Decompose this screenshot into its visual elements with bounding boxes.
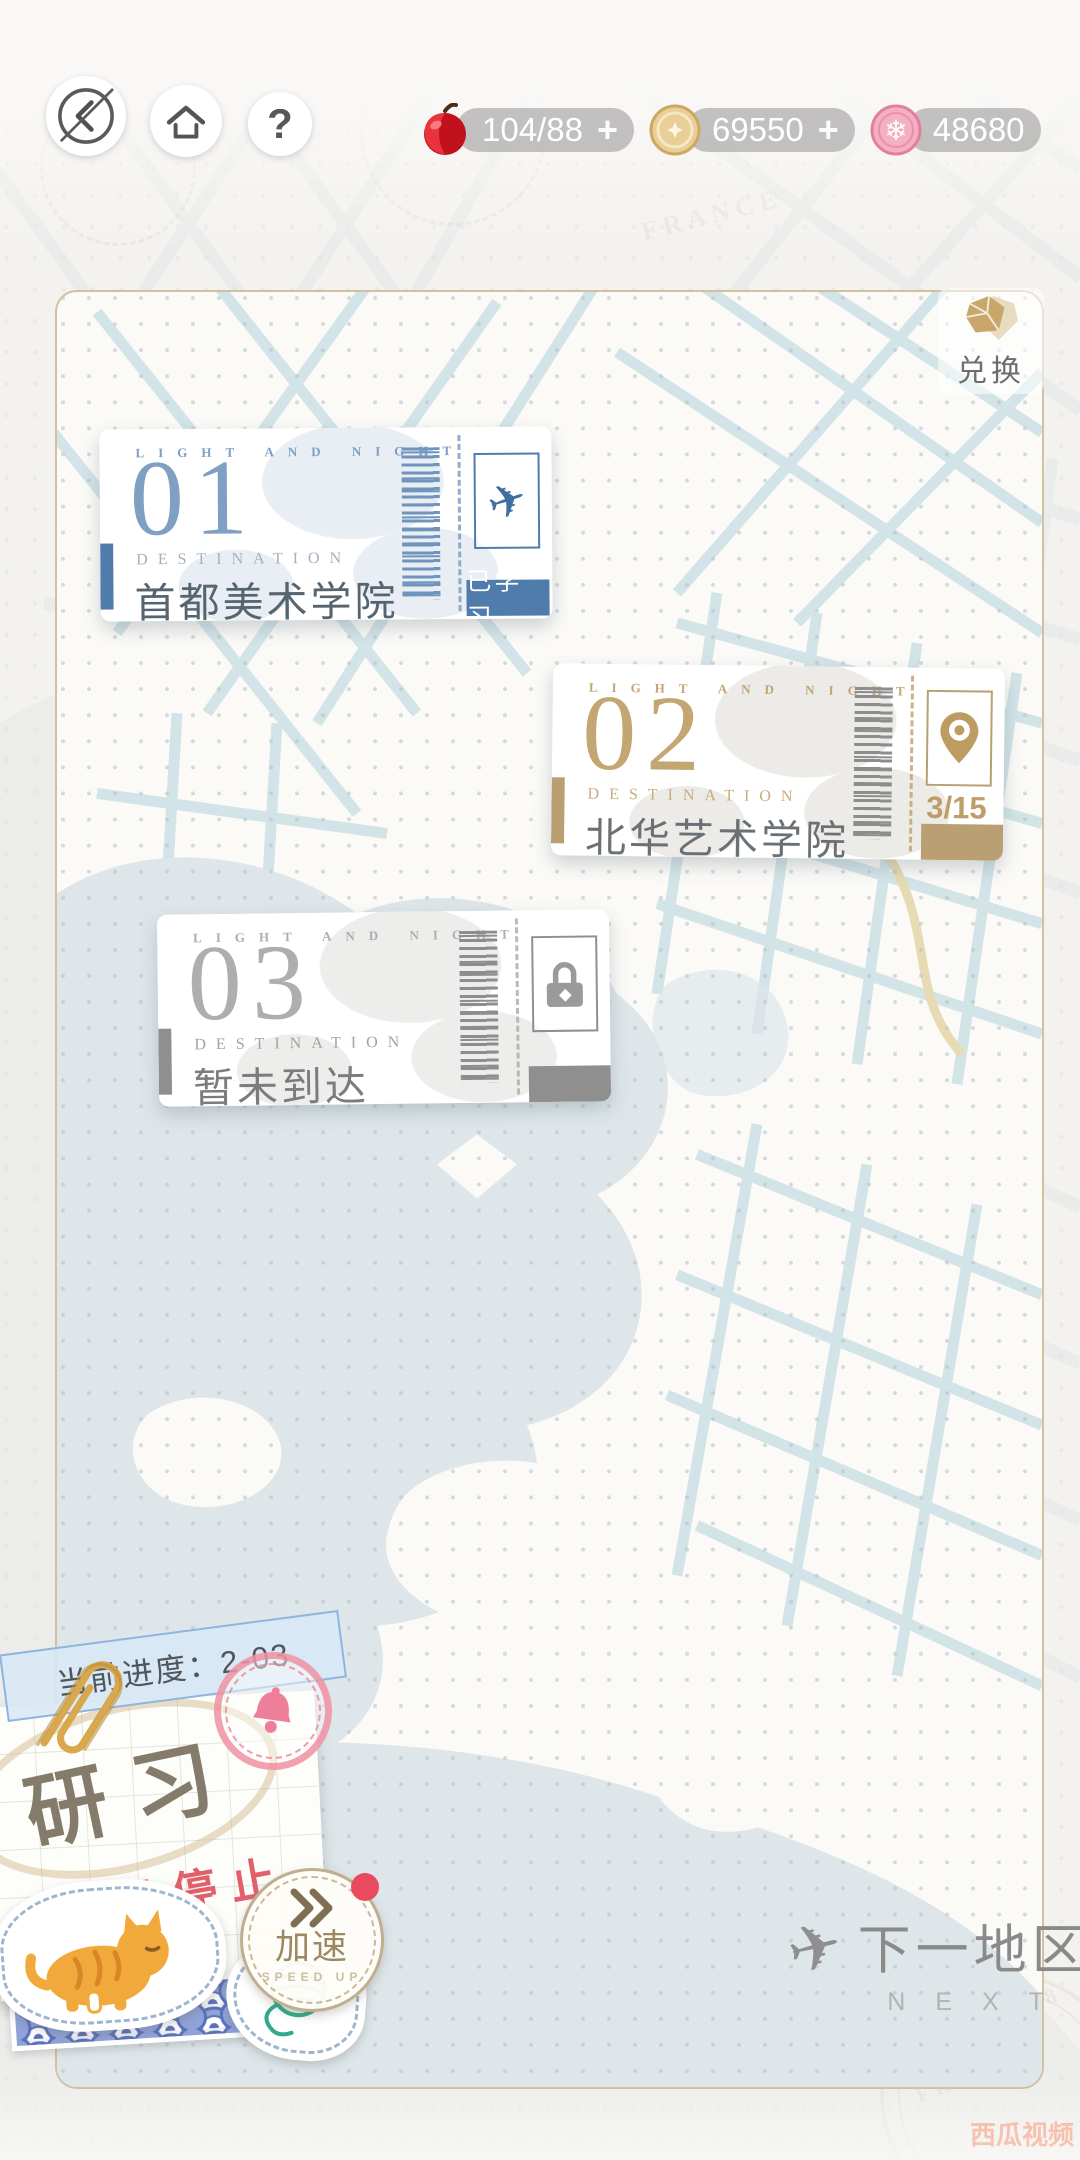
apple-icon: [418, 103, 472, 157]
back-button[interactable]: [46, 76, 126, 156]
lock-icon: [541, 959, 588, 1010]
speedup-sublabel: SPEED UP: [262, 1970, 363, 1984]
ticket-barcode: [853, 687, 893, 839]
ticket-icon-box: [926, 690, 993, 787]
ticket-number: 01: [129, 436, 258, 561]
ticket-destination-label: DESTINATION: [136, 550, 351, 569]
currency-apple-value: 104/88: [482, 111, 583, 149]
ticket-divider: [515, 918, 520, 1094]
speedup-button[interactable]: 加速 SPEED UP: [240, 1868, 384, 2012]
ticket-destination-label: DESTINATION: [194, 1034, 409, 1055]
currency-gold-pill: 69550 +: [686, 108, 855, 152]
ticket-number: 03: [187, 921, 317, 1047]
ticket-barcode: [459, 931, 499, 1083]
pink-coin-icon: ❄: [869, 103, 923, 157]
ticket-stub-bar: [921, 824, 1003, 861]
ticket-icon-box: ✈: [474, 453, 541, 549]
ticket-stub-bar: [529, 1065, 611, 1102]
help-button[interactable]: ?: [248, 92, 312, 156]
currency-apple-pill: 104/88 +: [456, 108, 634, 152]
watermark: 西瓜视频: [970, 2115, 1074, 2152]
ticket-progress-count: 3/15: [913, 790, 999, 827]
ticket-destination-name: 北华艺术学院: [585, 804, 850, 861]
question-icon: ?: [267, 100, 293, 148]
currency-pink-value: 48680: [933, 111, 1025, 149]
ticket-divider: [457, 435, 461, 611]
currency-gold-value: 69550: [712, 111, 804, 149]
currency-apple[interactable]: 104/88 +: [418, 103, 634, 157]
ticket-destination-name: 暂未到达: [193, 1052, 370, 1107]
currency-bar: 104/88 + 69550 +: [418, 104, 1041, 156]
ticket-accent-bar: [158, 1029, 172, 1095]
gold-coin-icon: [648, 103, 702, 157]
exchange-button[interactable]: 兑换: [938, 288, 1044, 394]
add-apple-button[interactable]: +: [597, 109, 618, 151]
plane-icon: ✈: [481, 473, 532, 529]
next-area-button[interactable]: ✈ 下一地区 NEXT: [788, 1908, 1073, 2008]
chevron-back-icon: [50, 80, 122, 152]
svg-text:❄: ❄: [884, 115, 907, 146]
home-icon: [160, 95, 212, 147]
exchange-label: 兑换: [957, 346, 1025, 390]
next-area-label: 下一地区: [858, 1908, 1080, 1984]
plane-icon: ✈: [781, 1910, 849, 1985]
ticket-accent-bar: [100, 543, 113, 609]
ticket-destination-1[interactable]: LIGHT AND NIGHT 01 DESTINATION 首都美术学院 ✈ …: [99, 426, 552, 621]
home-button[interactable]: [150, 85, 222, 157]
ticket-status-badge: 已学习: [466, 579, 549, 616]
add-gold-button[interactable]: +: [818, 109, 839, 151]
gem-icon: [960, 292, 1022, 344]
notification-dot: [351, 1873, 379, 1901]
ticket-destination-2[interactable]: LIGHT AND NIGHT 02 DESTINATION 北华艺术学院 3/…: [551, 663, 1005, 861]
next-area-sublabel: NEXT: [887, 1988, 1074, 2017]
ticket-accent-bar: [551, 777, 565, 843]
ticket-destination-name: 首都美术学院: [134, 567, 398, 621]
ticket-barcode: [401, 447, 440, 599]
location-pin-icon: [939, 711, 980, 765]
ticket-number: 02: [582, 672, 712, 798]
currency-pink[interactable]: ❄ 48680: [869, 103, 1041, 157]
currency-pink-pill: 48680: [907, 108, 1041, 152]
map-screen: FRANCE PARIS 21 JAN 2018 FRANCE ?: [0, 0, 1080, 2160]
fast-forward-icon: [289, 1887, 335, 1929]
speedup-label: 加速: [275, 1929, 349, 1968]
ticket-icon-box: [531, 935, 598, 1032]
ticket-destination-3[interactable]: LIGHT AND NIGHT 03 DESTINATION 暂未到达: [157, 909, 611, 1107]
currency-gold[interactable]: 69550 +: [648, 103, 855, 157]
